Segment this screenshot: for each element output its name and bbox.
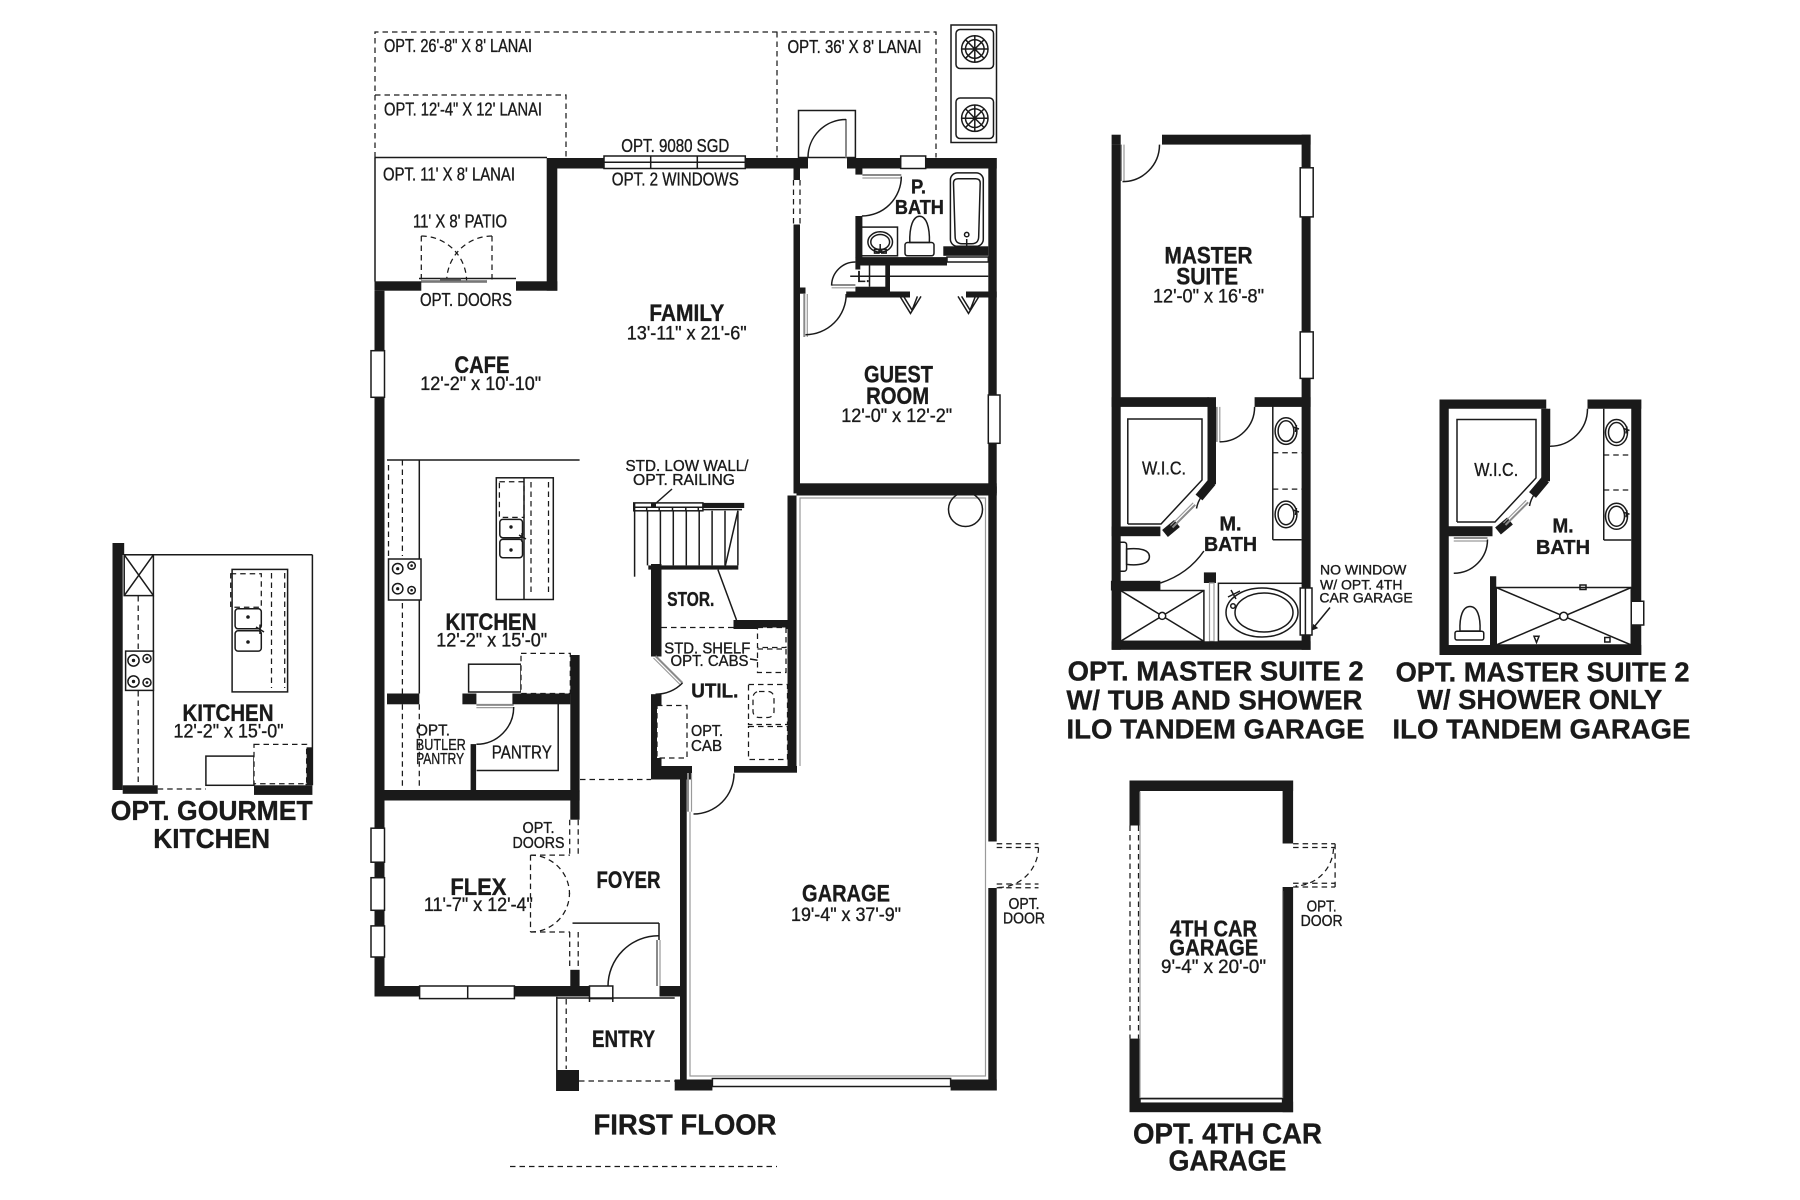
svg-text:ILO TANDEM GARAGE: ILO TANDEM GARAGE xyxy=(1393,714,1691,745)
svg-text:CAB: CAB xyxy=(691,738,722,755)
svg-text:12'-2" x 15'-0": 12'-2" x 15'-0" xyxy=(174,722,284,743)
svg-text:ENTRY: ENTRY xyxy=(592,1026,655,1053)
svg-text:19'-4" x 37'-9": 19'-4" x 37'-9" xyxy=(791,905,901,926)
svg-text:M.: M. xyxy=(1220,514,1242,536)
svg-text:OPT. DOORS: OPT. DOORS xyxy=(420,290,512,310)
svg-text:STOR.: STOR. xyxy=(667,589,714,611)
svg-text:GARAGE: GARAGE xyxy=(802,881,890,908)
svg-text:OPT. GOURMET: OPT. GOURMET xyxy=(111,795,313,826)
svg-text:ILO TANDEM GARAGE: ILO TANDEM GARAGE xyxy=(1067,714,1365,745)
svg-text:11' X 8' PATIO: 11' X 8' PATIO xyxy=(413,212,507,232)
svg-text:M.: M. xyxy=(1553,516,1574,538)
svg-text:OPT. CABS: OPT. CABS xyxy=(671,653,749,670)
svg-text:W/ TUB AND SHOWER: W/ TUB AND SHOWER xyxy=(1066,685,1362,716)
svg-text:OPT. 36' X 8' LANAI: OPT. 36' X 8' LANAI xyxy=(788,37,922,57)
svg-text:9'-4" x 20'-0": 9'-4" x 20'-0" xyxy=(1161,957,1266,978)
svg-text:W/ SHOWER ONLY: W/ SHOWER ONLY xyxy=(1417,684,1662,715)
svg-text:P.: P. xyxy=(911,177,926,199)
svg-text:12'-2" x 15'-0": 12'-2" x 15'-0" xyxy=(436,631,547,652)
svg-text:PANTRY: PANTRY xyxy=(416,751,464,768)
svg-text:OPT. 2 WINDOWS: OPT. 2 WINDOWS xyxy=(612,170,739,190)
svg-text:12'-0" x 16'-8": 12'-0" x 16'-8" xyxy=(1153,287,1264,308)
svg-text:BATH: BATH xyxy=(1204,534,1257,556)
svg-text:DOOR: DOOR xyxy=(1301,913,1343,930)
svg-text:GARAGE: GARAGE xyxy=(1169,1146,1287,1178)
svg-text:CAR GARAGE: CAR GARAGE xyxy=(1319,590,1412,606)
svg-text:W.I.C.: W.I.C. xyxy=(1474,460,1518,480)
svg-text:OPT. RAILING: OPT. RAILING xyxy=(633,472,735,489)
svg-text:OPT. 12'-4" X 12' LANAI: OPT. 12'-4" X 12' LANAI xyxy=(384,100,542,120)
svg-text:OPT. 26'-8" X 8' LANAI: OPT. 26'-8" X 8' LANAI xyxy=(384,36,532,56)
svg-text:DOOR: DOOR xyxy=(1003,911,1045,928)
svg-text:13'-11" x 21'-6": 13'-11" x 21'-6" xyxy=(627,324,747,345)
svg-text:DOORS: DOORS xyxy=(513,835,565,852)
svg-text:FOYER: FOYER xyxy=(597,867,661,894)
svg-text:12'-2" x 10'-10": 12'-2" x 10'-10" xyxy=(420,374,541,395)
svg-text:W.I.C.: W.I.C. xyxy=(1142,459,1186,479)
svg-text:BATH: BATH xyxy=(1536,537,1590,559)
svg-text:12'-0" x 12'-2": 12'-0" x 12'-2" xyxy=(841,406,952,427)
svg-text:OPT. MASTER SUITE 2: OPT. MASTER SUITE 2 xyxy=(1068,656,1364,687)
svg-text:11'-7" x 12'-4": 11'-7" x 12'-4" xyxy=(424,895,533,916)
svg-text:OPT. 11' X 8' LANAI: OPT. 11' X 8' LANAI xyxy=(383,165,515,185)
svg-text:OPT. 9080 SGD: OPT. 9080 SGD xyxy=(621,136,729,156)
svg-text:PANTRY: PANTRY xyxy=(492,743,552,763)
svg-text:NO WINDOW: NO WINDOW xyxy=(1320,562,1407,578)
svg-text:OPT. MASTER SUITE 2: OPT. MASTER SUITE 2 xyxy=(1396,657,1690,688)
svg-text:UTIL.: UTIL. xyxy=(691,681,738,703)
svg-text:L.: L. xyxy=(857,269,870,286)
svg-text:FIRST FLOOR: FIRST FLOOR xyxy=(594,1110,777,1142)
svg-text:KITCHEN: KITCHEN xyxy=(153,823,270,854)
